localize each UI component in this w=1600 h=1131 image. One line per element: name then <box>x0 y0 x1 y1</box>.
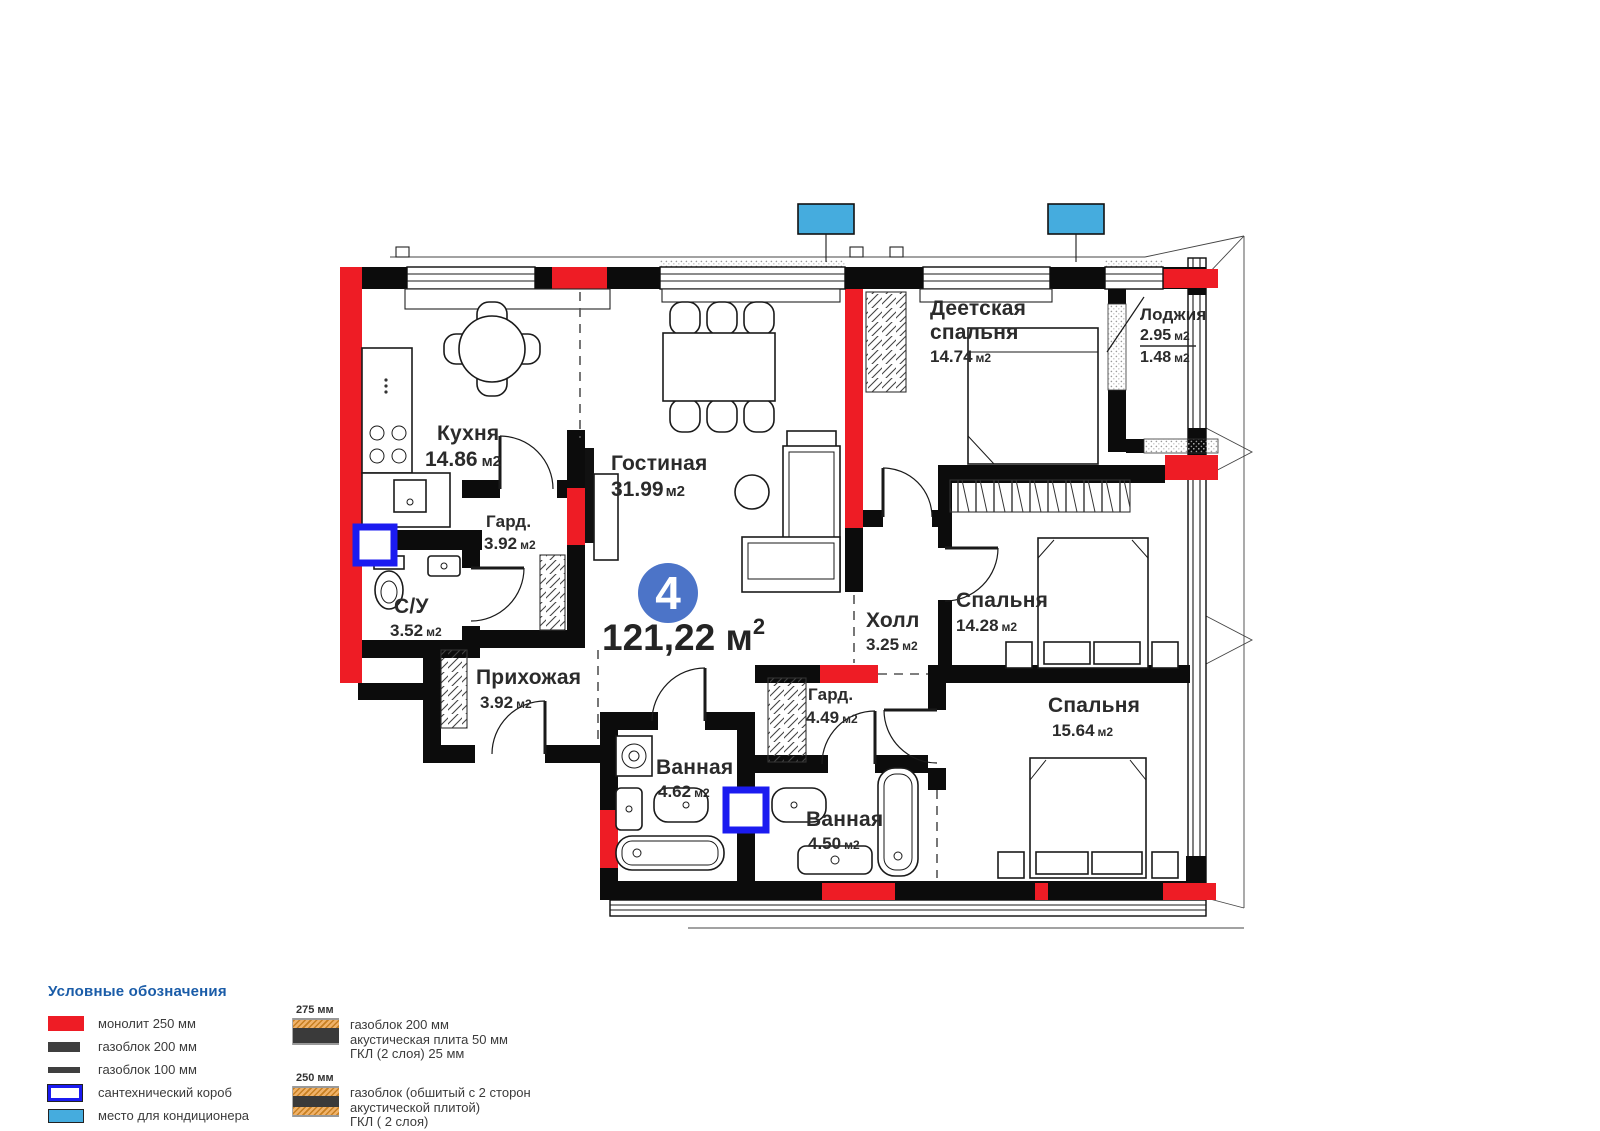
dining-set <box>663 302 775 432</box>
sink <box>616 788 642 830</box>
room-label-wc: С/У <box>394 595 429 618</box>
kitchen-table <box>459 316 525 382</box>
top-windows <box>405 260 1163 309</box>
wc-sink <box>428 556 460 576</box>
kitchen-furniture <box>362 302 540 527</box>
svg-text:1.48м2: 1.48м2 <box>1140 349 1190 366</box>
gasblock200-swatch <box>48 1042 80 1052</box>
svg-text:14.28м2: 14.28м2 <box>956 616 1017 635</box>
ac-spot <box>798 204 854 234</box>
svg-text:3.25м2: 3.25м2 <box>866 635 918 654</box>
gasblock100-swatch <box>48 1067 80 1073</box>
coffee-table <box>735 475 769 509</box>
legend-item-gas200: газоблок 200 мм <box>48 1039 249 1054</box>
ac-swatch <box>48 1109 84 1123</box>
room-label-hallway: Прихожая <box>476 666 581 689</box>
legend: Условные обозначения монолит 250 мм газо… <box>48 983 249 1131</box>
floorplan-drawing: Кухня 14.86м2 Гостиная 31.99м2 Гард. 3.9… <box>0 0 1600 1131</box>
dining-table <box>663 333 775 401</box>
total-area: 121,22 м2 <box>602 614 765 658</box>
svg-text:3.92м2: 3.92м2 <box>484 534 536 553</box>
ac-units <box>798 204 1104 262</box>
sanitary-box-swatch <box>48 1085 82 1101</box>
legend-item-sanbox: сантехнический короб <box>48 1085 249 1100</box>
svg-text:спальня: спальня <box>930 321 1019 344</box>
sanitary-box <box>356 527 394 563</box>
washing-machine <box>616 736 652 776</box>
svg-text:2.95м2: 2.95м2 <box>1140 327 1190 344</box>
bedroom2-furniture <box>998 758 1178 878</box>
floorplan-page: Кухня 14.86м2 Гостиная 31.99м2 Гард. 3.9… <box>0 0 1600 1131</box>
svg-text:15.64м2: 15.64м2 <box>1052 721 1113 740</box>
legend-item-monolith: монолит 250 мм <box>48 1016 249 1031</box>
legend-item-gas100: газоблок 100 мм <box>48 1062 249 1077</box>
svg-text:14.86м2: 14.86м2 <box>425 448 501 471</box>
room-label-hall: Холл <box>866 609 920 632</box>
wall-section-275: 275 мм газоблок 200 мм акустическая плит… <box>292 1004 592 1062</box>
ac-spot <box>1048 204 1104 234</box>
svg-text:4.50м2: 4.50м2 <box>808 834 860 853</box>
room-label-bedroom1: Спальня <box>956 589 1048 612</box>
room-label-kids-bedroom: Деетская <box>930 297 1026 320</box>
svg-text:3.92м2: 3.92м2 <box>480 693 532 712</box>
facade-pilaster <box>850 247 863 257</box>
unit-number: 4 <box>655 567 681 619</box>
room-label-bathroom2: Ванная <box>806 808 883 831</box>
kids-bed <box>968 328 1098 464</box>
kitchen-sink <box>394 480 426 512</box>
monolith-swatch <box>48 1016 84 1031</box>
room-label-bedroom2: Спальня <box>1048 694 1140 717</box>
legend-title: Условные обозначения <box>48 983 249 1000</box>
svg-text:4.62м2: 4.62м2 <box>658 782 710 801</box>
tv-panel <box>585 448 594 543</box>
room-label-bathroom1: Ванная <box>656 756 733 779</box>
svg-text:31.99м2: 31.99м2 <box>611 478 685 501</box>
room-label-kitchen: Кухня <box>437 422 499 445</box>
wall-section-250: 250 мм газоблок (обшитый с 2 сторон акус… <box>292 1072 592 1130</box>
window-sill <box>662 289 840 302</box>
sanitary-box <box>726 790 766 830</box>
room-label-living: Гостиная <box>611 452 708 475</box>
unit-badge: 4 121,22 м2 <box>602 563 765 658</box>
wall-section-250-symbol <box>292 1086 339 1117</box>
facade-pilaster <box>396 247 409 257</box>
room-label-loggia: Лоджия <box>1140 305 1207 324</box>
facade-pilaster <box>890 247 903 257</box>
legend-item-ac: место для кондиционера <box>48 1108 249 1123</box>
room-label-wardrobe2: Гард. <box>808 685 853 704</box>
svg-text:3.52м2: 3.52м2 <box>390 621 442 640</box>
wall-sections-legend: 275 мм газоблок 200 мм акустическая плит… <box>292 1004 592 1131</box>
closet-rail <box>950 480 1130 512</box>
svg-text:4.49м2: 4.49м2 <box>806 708 858 727</box>
wall-section-275-symbol <box>292 1018 339 1045</box>
room-label-wardrobe1: Гард. <box>486 512 531 531</box>
